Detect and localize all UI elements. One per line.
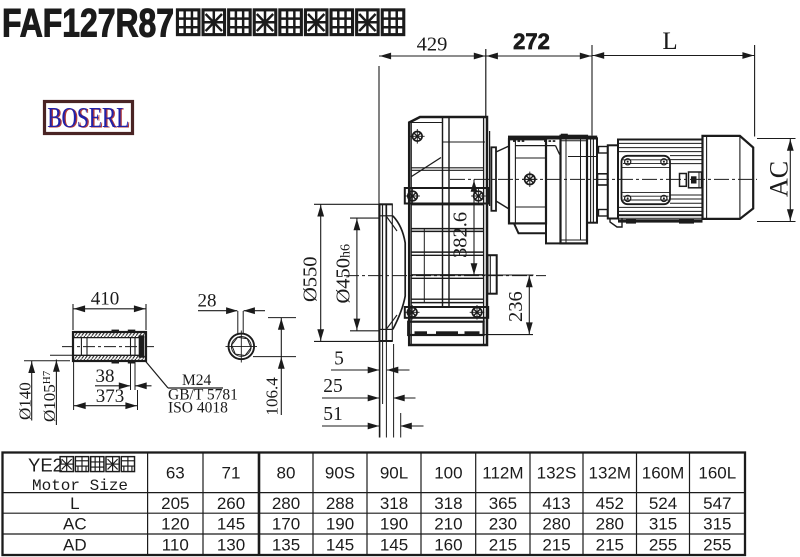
svg-text:236: 236	[505, 291, 527, 322]
svg-text:280: 280	[272, 494, 300, 513]
svg-text:106.4: 106.4	[262, 377, 281, 416]
svg-text:38: 38	[96, 366, 115, 387]
svg-text:80: 80	[277, 464, 296, 483]
svg-text:5: 5	[334, 349, 344, 370]
svg-text:Ø140: Ø140	[15, 382, 34, 420]
svg-text:AC: AC	[63, 515, 87, 534]
svg-text:318: 318	[380, 494, 408, 513]
svg-text:210: 210	[434, 515, 462, 534]
svg-text:524: 524	[649, 494, 677, 513]
svg-text:FAF127R87: FAF127R87	[2, 2, 174, 46]
svg-text:429: 429	[417, 34, 448, 56]
svg-text:160M: 160M	[642, 464, 685, 483]
svg-text:145: 145	[380, 535, 408, 554]
svg-text:71: 71	[222, 464, 241, 483]
svg-text:373: 373	[96, 386, 125, 407]
svg-text:63: 63	[166, 464, 185, 483]
svg-text:413: 413	[542, 494, 570, 513]
svg-text:170: 170	[272, 515, 300, 534]
svg-text:130: 130	[217, 535, 245, 554]
svg-text:51: 51	[323, 404, 343, 425]
svg-text:315: 315	[649, 515, 677, 534]
svg-text:L: L	[662, 28, 677, 55]
svg-text:452: 452	[596, 494, 624, 513]
svg-text:Ø450h6: Ø450h6	[333, 244, 355, 304]
svg-text:L: L	[70, 494, 79, 513]
svg-text:255: 255	[649, 535, 677, 554]
svg-text:25: 25	[323, 376, 343, 397]
svg-text:365: 365	[489, 494, 517, 513]
svg-text:AC: AC	[765, 161, 794, 197]
svg-text:AD: AD	[63, 535, 87, 554]
svg-text:318: 318	[434, 494, 462, 513]
svg-text:YE2: YE2	[28, 455, 63, 476]
svg-text:110: 110	[162, 535, 189, 554]
svg-text:100: 100	[434, 464, 462, 483]
svg-text:BOSERL: BOSERL	[47, 103, 129, 134]
svg-text:Ø550: Ø550	[300, 256, 322, 302]
svg-text:547: 547	[703, 494, 731, 513]
svg-text:160: 160	[434, 535, 462, 554]
svg-text:190: 190	[326, 515, 354, 534]
svg-text:132M: 132M	[589, 464, 632, 483]
svg-text:260: 260	[217, 494, 245, 513]
svg-text:215: 215	[542, 535, 570, 554]
svg-text:Motor Size: Motor Size	[32, 477, 128, 495]
svg-text:215: 215	[489, 535, 517, 554]
svg-text:90L: 90L	[380, 464, 408, 483]
svg-text:135: 135	[272, 535, 300, 554]
svg-text:ISO 4018: ISO 4018	[168, 400, 228, 417]
svg-text:230: 230	[489, 515, 517, 534]
svg-text:145: 145	[217, 515, 245, 534]
svg-text:255: 255	[703, 535, 731, 554]
svg-text:315: 315	[703, 515, 731, 534]
svg-text:205: 205	[161, 494, 189, 513]
svg-text:190: 190	[380, 515, 408, 534]
svg-text:28: 28	[198, 291, 217, 312]
svg-text:288: 288	[326, 494, 354, 513]
svg-text:280: 280	[596, 515, 624, 534]
svg-text:382.6: 382.6	[450, 212, 472, 258]
svg-text:410: 410	[91, 289, 120, 310]
svg-text:90S: 90S	[325, 464, 355, 483]
svg-text:112M: 112M	[482, 464, 523, 483]
svg-text:132S: 132S	[537, 464, 577, 483]
svg-text:120: 120	[161, 515, 189, 534]
svg-text:280: 280	[542, 515, 570, 534]
svg-text:215: 215	[596, 535, 624, 554]
svg-text:160L: 160L	[698, 464, 736, 483]
svg-text:145: 145	[326, 535, 354, 554]
svg-text:272: 272	[513, 29, 550, 54]
